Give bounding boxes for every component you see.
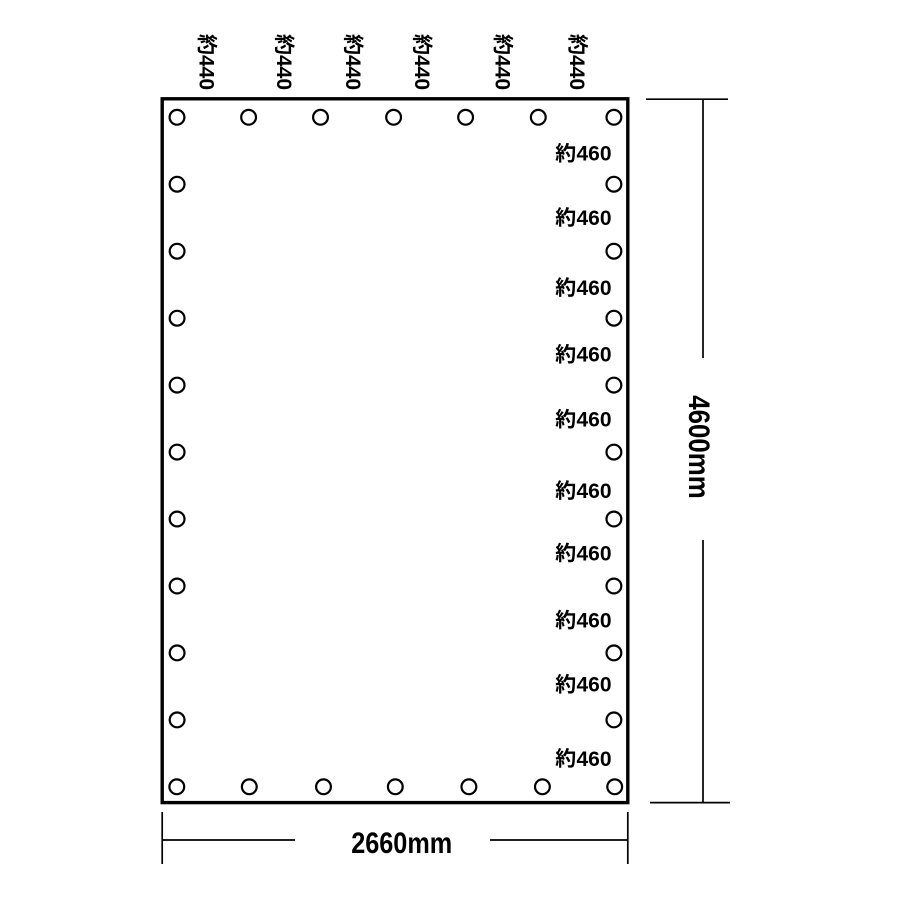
svg-text:440: 440: [272, 55, 295, 90]
svg-text:440: 440: [491, 55, 514, 90]
svg-text:460: 460: [577, 748, 612, 771]
svg-text:460: 460: [577, 674, 612, 697]
svg-text:460: 460: [577, 610, 612, 633]
svg-text:460: 460: [577, 480, 612, 503]
svg-text:460: 460: [577, 542, 612, 565]
svg-text:440: 440: [341, 55, 364, 90]
svg-text:440: 440: [410, 55, 433, 90]
svg-text:440: 440: [565, 55, 588, 90]
svg-text:460: 460: [577, 207, 612, 230]
svg-text:440: 440: [195, 55, 218, 90]
svg-text:2660mm: 2660mm: [351, 826, 452, 859]
svg-text:4600mm: 4600mm: [683, 395, 716, 498]
svg-text:460: 460: [577, 143, 612, 166]
svg-text:460: 460: [577, 344, 612, 367]
svg-text:460: 460: [577, 277, 612, 300]
svg-text:460: 460: [577, 409, 612, 432]
